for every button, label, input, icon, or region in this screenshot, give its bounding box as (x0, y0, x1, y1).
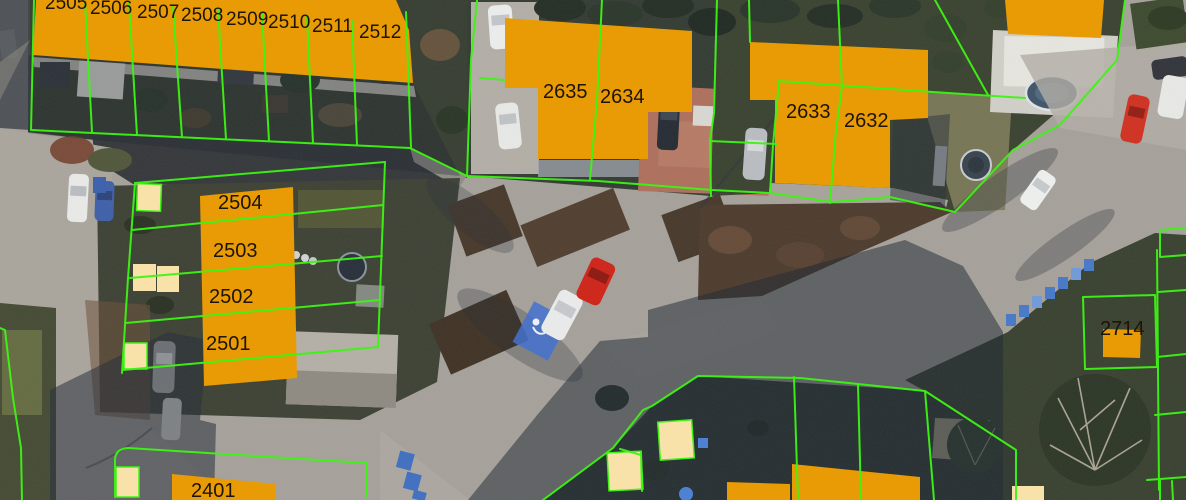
parcel-label-2505: 2505 (45, 0, 87, 14)
building-footprint-south-1 (727, 482, 790, 500)
parcel-label-2511: 2511 (312, 16, 353, 37)
shed-footprint (124, 343, 147, 369)
parcel-label-2509: 2509 (226, 9, 268, 30)
parcel-label-2633: 2633 (786, 101, 831, 123)
parcel-label-2507: 2507 (137, 2, 179, 23)
parcel-label-2503: 2503 (213, 240, 258, 262)
shed-footprint (116, 467, 139, 497)
parcel-label-2502: 2502 (209, 286, 254, 308)
map-viewport: 2505 2506 2507 2508 2509 2510 2511 2512 … (0, 0, 1186, 500)
parcel-label-2501: 2501 (206, 333, 251, 355)
parcel-label-2512: 2512 (359, 22, 401, 43)
parcel-label-2714: 2714 (1100, 318, 1145, 340)
parcel-label-2506: 2506 (90, 0, 132, 19)
shed-footprint (157, 266, 179, 292)
parcel-label-2508: 2508 (181, 5, 223, 26)
shed-footprint (607, 451, 643, 491)
parcel-label-2632: 2632 (844, 110, 889, 132)
parcel-label-2635: 2635 (543, 81, 588, 103)
building-footprint-corner-house (1005, 0, 1104, 38)
shed-footprint (658, 420, 695, 460)
parcel-label-2401: 2401 (191, 480, 236, 500)
parcel-label-2510: 2510 (268, 12, 310, 33)
shed-footprint (137, 184, 162, 212)
parcel-label-2504: 2504 (218, 192, 263, 214)
parcel-label-2634: 2634 (600, 86, 645, 108)
map-canvas[interactable]: 2505 2506 2507 2508 2509 2510 2511 2512 … (0, 0, 1186, 500)
